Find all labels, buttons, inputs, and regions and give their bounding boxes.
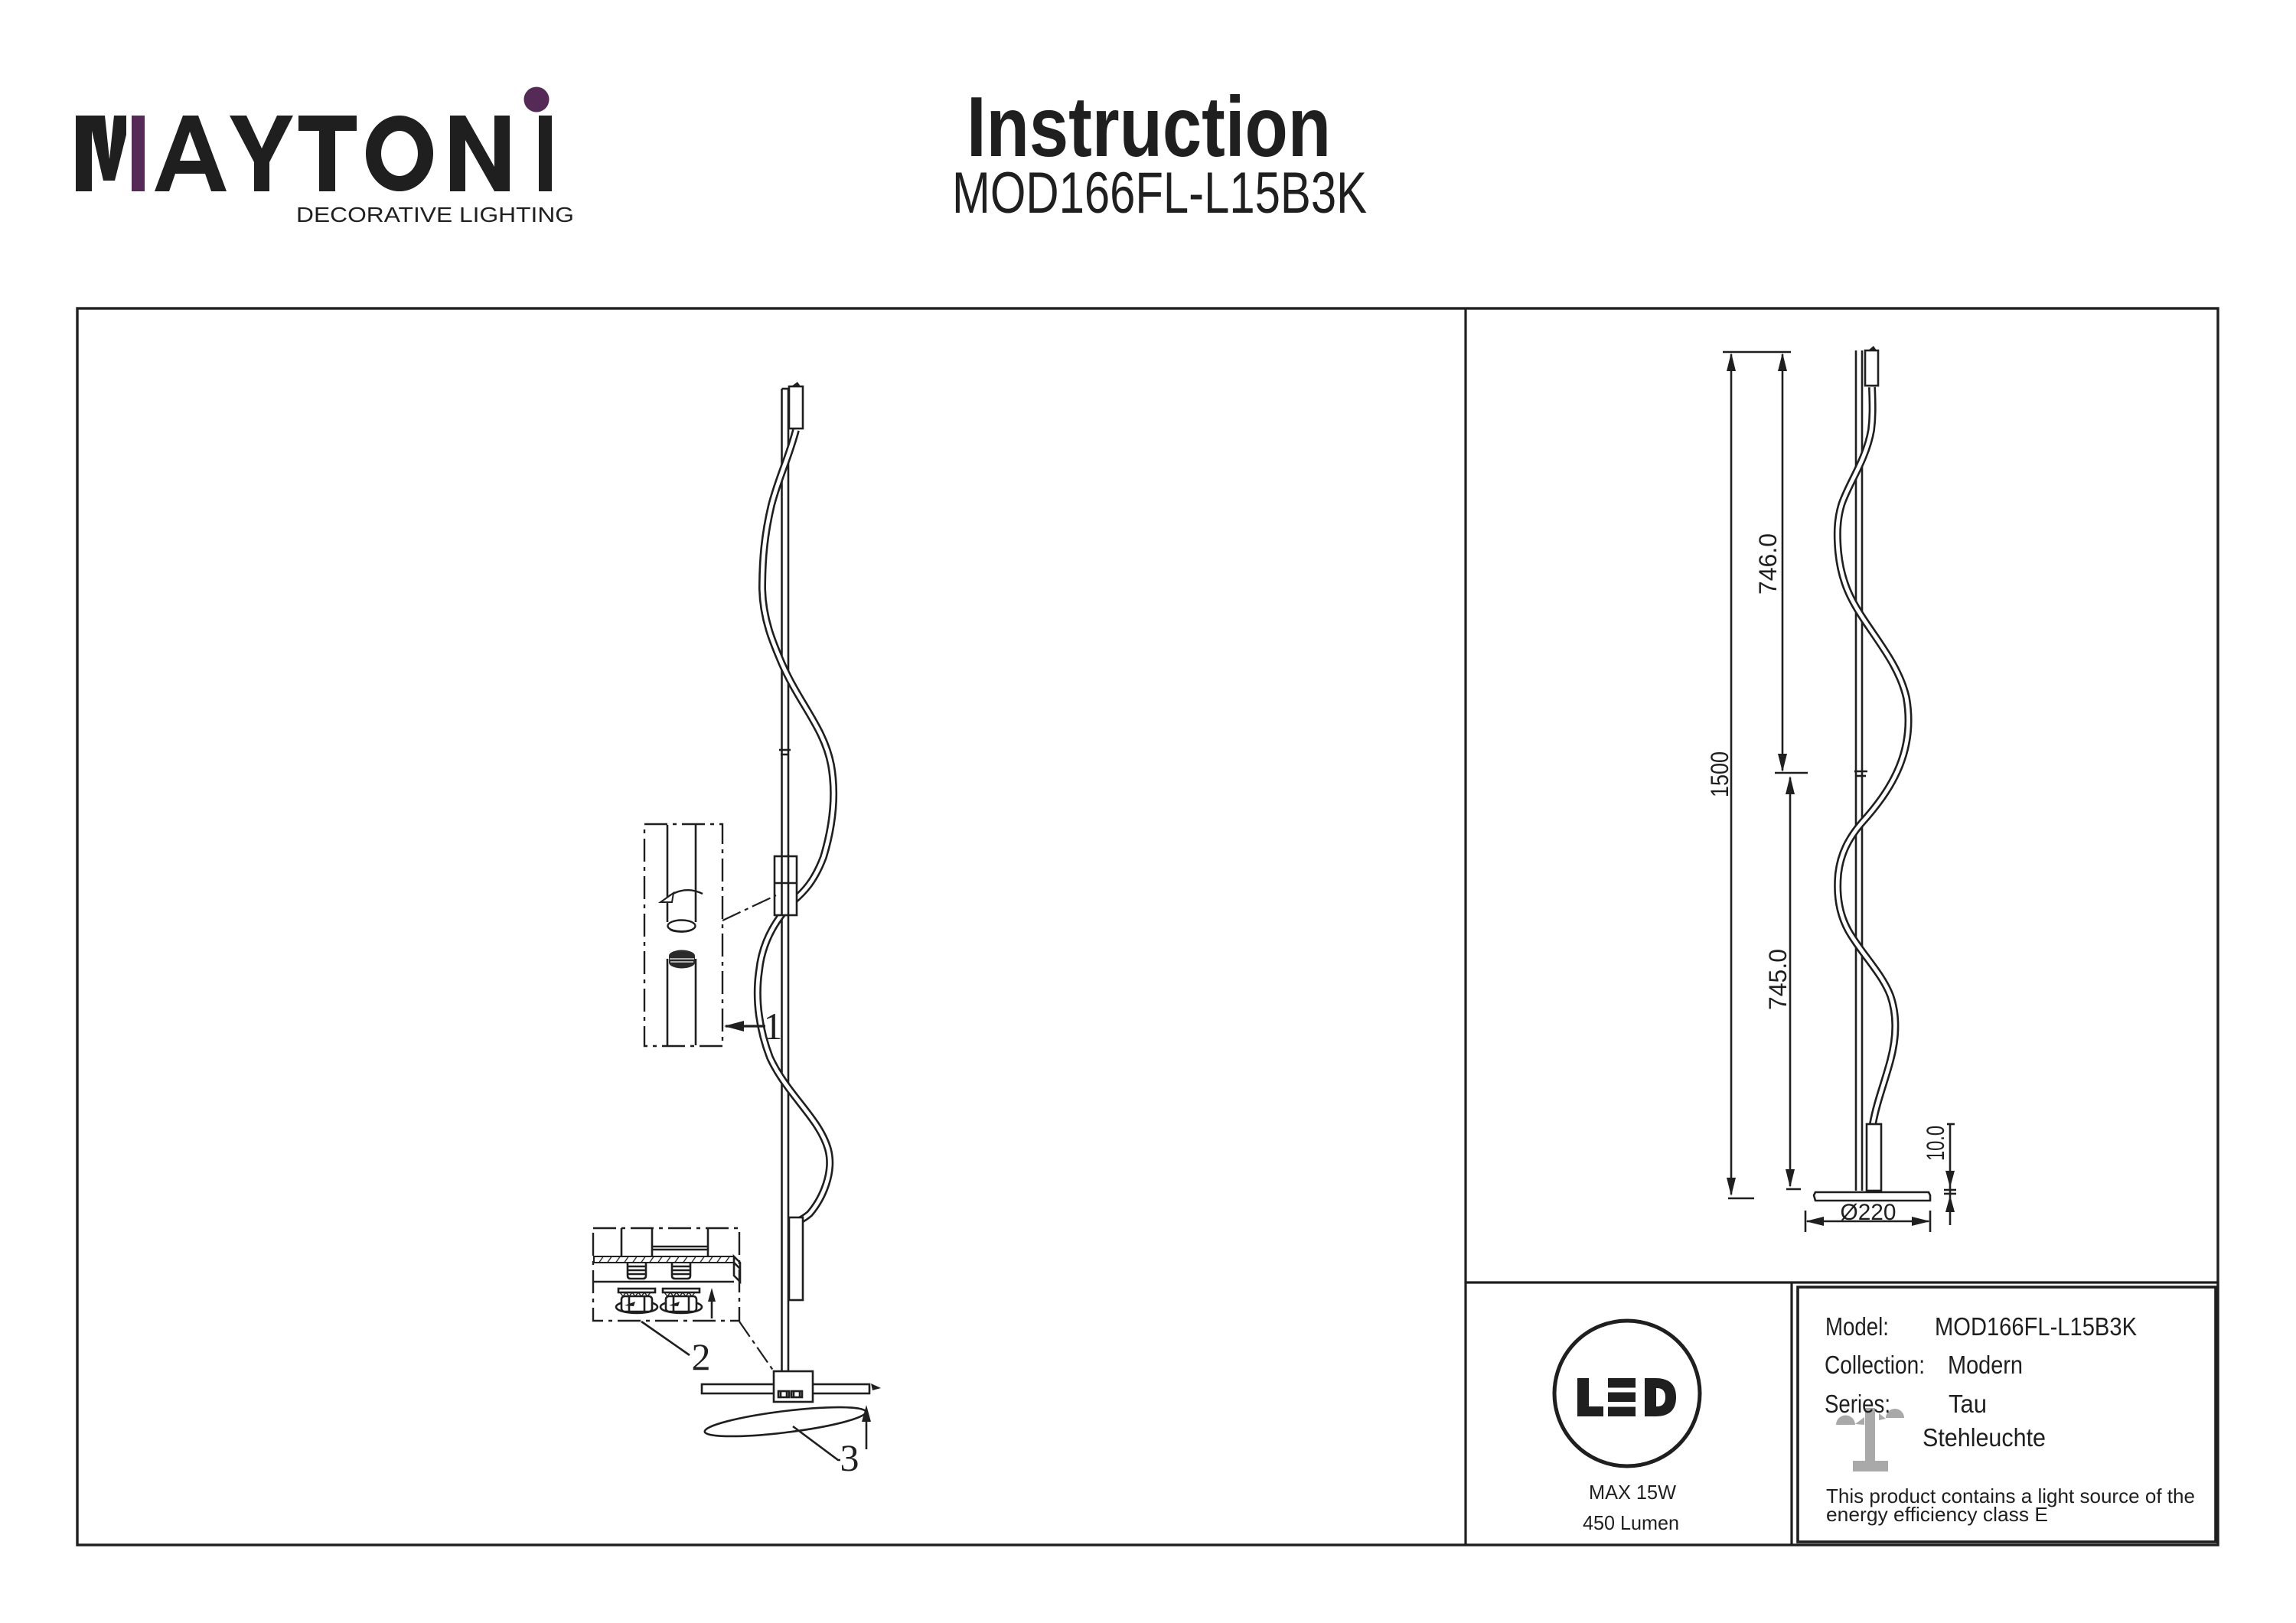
svg-text:745.0: 745.0 <box>1764 949 1792 1010</box>
svg-text:746.0: 746.0 <box>1754 533 1782 595</box>
svg-text:Ø220: Ø220 <box>1841 1200 1896 1225</box>
svg-text:2: 2 <box>692 1335 711 1378</box>
svg-text:DECORATIVE LIGHTING: DECORATIVE LIGHTING <box>296 203 574 227</box>
svg-text:Collection:: Collection: <box>1825 1351 1925 1379</box>
svg-text:450 Lumen: 450 Lumen <box>1583 1511 1679 1534</box>
svg-text:Tau: Tau <box>1949 1390 1987 1418</box>
svg-text:10.0: 10.0 <box>1922 1126 1949 1161</box>
svg-text:Stehleuchte: Stehleuchte <box>1923 1423 2046 1452</box>
svg-text:1: 1 <box>764 1005 783 1048</box>
svg-text:energy efficiency class E: energy efficiency class E <box>1826 1503 2048 1526</box>
svg-text:Series:: Series: <box>1825 1390 1890 1418</box>
svg-text:1500: 1500 <box>1706 751 1733 797</box>
svg-text:3: 3 <box>840 1436 859 1479</box>
svg-text:MOD166FL-L15B3K: MOD166FL-L15B3K <box>1935 1312 2137 1341</box>
svg-text:Model:: Model: <box>1825 1312 1889 1341</box>
svg-text:Modern: Modern <box>1948 1351 2023 1379</box>
svg-text:MOD166FL-L15B3K: MOD166FL-L15B3K <box>952 161 1367 226</box>
svg-text:MAX 15W: MAX 15W <box>1589 1481 1676 1504</box>
